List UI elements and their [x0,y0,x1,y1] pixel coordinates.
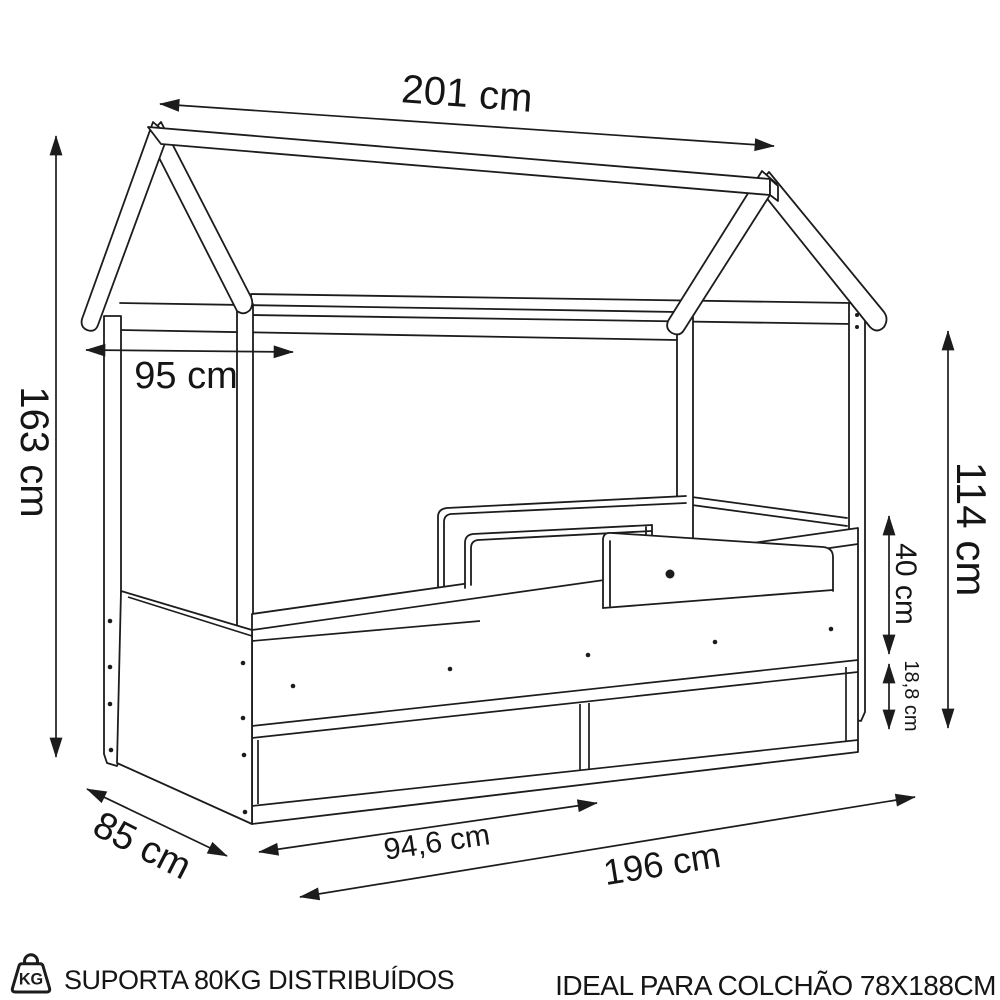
rafter-right-front [667,171,777,334]
dim-label-canopy-height: 114 cm [950,462,992,597]
footer: KG SUPORTA 80KG DISTRIBUÍDOS IDEAL PARA … [0,946,1000,1000]
ridge-beam [148,127,770,195]
capacity-text: SUPORTA 80KG DISTRIBUÍDOS [64,965,454,996]
mattress-text: IDEAL PARA COLCHÃO 78X188CM [555,970,996,1000]
diagram-page: 201 cm 95 cm 163 cm 114 cm 40 cm 18,8 cm… [0,0,1000,1000]
dim-label-roof-depth: 95 cm [134,357,237,395]
capacity-note: KG SUPORTA 80KG DISTRIBUÍDOS [6,950,454,1000]
rafter-left-front [82,122,168,331]
top-rail-back [251,294,852,324]
top-rail-front [120,303,677,340]
dim-label-total-height: 163 cm [14,386,54,517]
post-left-front [237,304,253,632]
dim-label-drawer-height: 18,8 cm [901,660,921,731]
guard-screw-cap [666,570,675,579]
dim-label-rail-height: 40 cm [890,543,920,625]
kg-badge-text: KG [19,970,43,988]
kg-weight-icon: KG [6,950,56,1000]
dim-label-total-width: 201 cm [400,69,534,118]
headboard-panel [117,591,252,824]
